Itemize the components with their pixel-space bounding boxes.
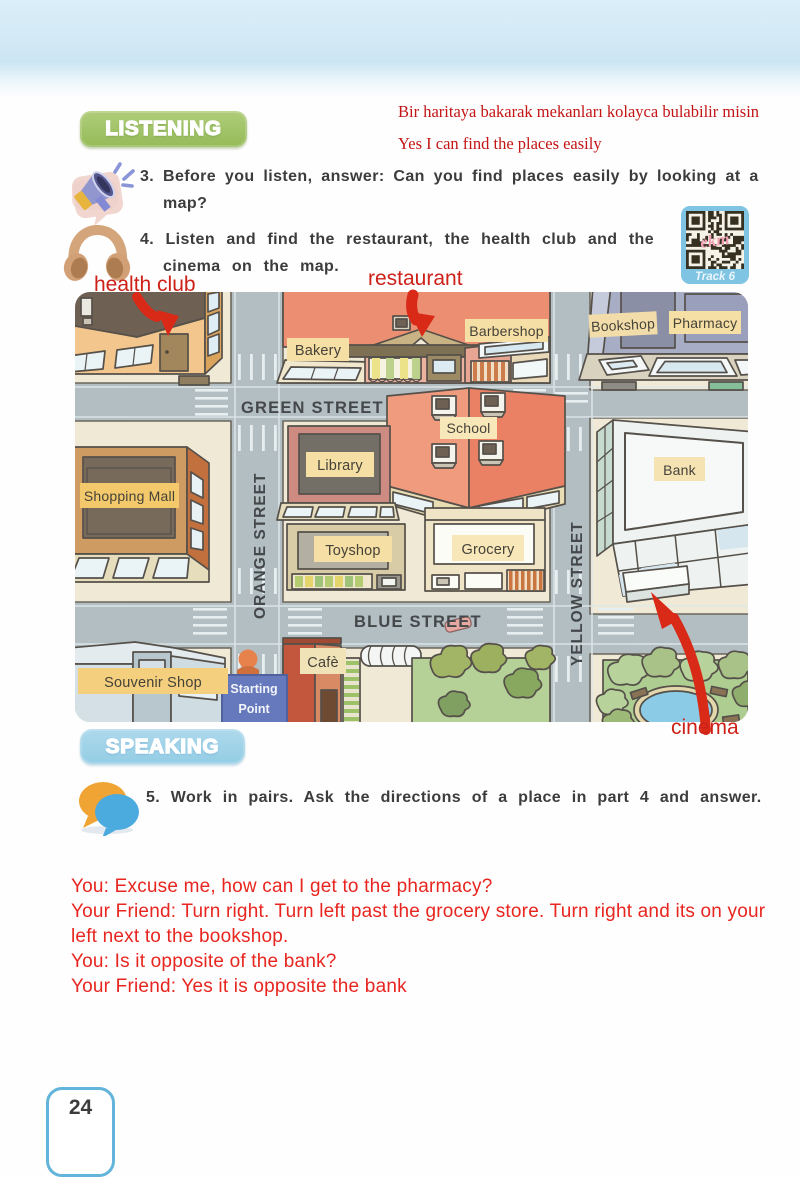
svg-text:ekm: ekm: [699, 229, 731, 252]
